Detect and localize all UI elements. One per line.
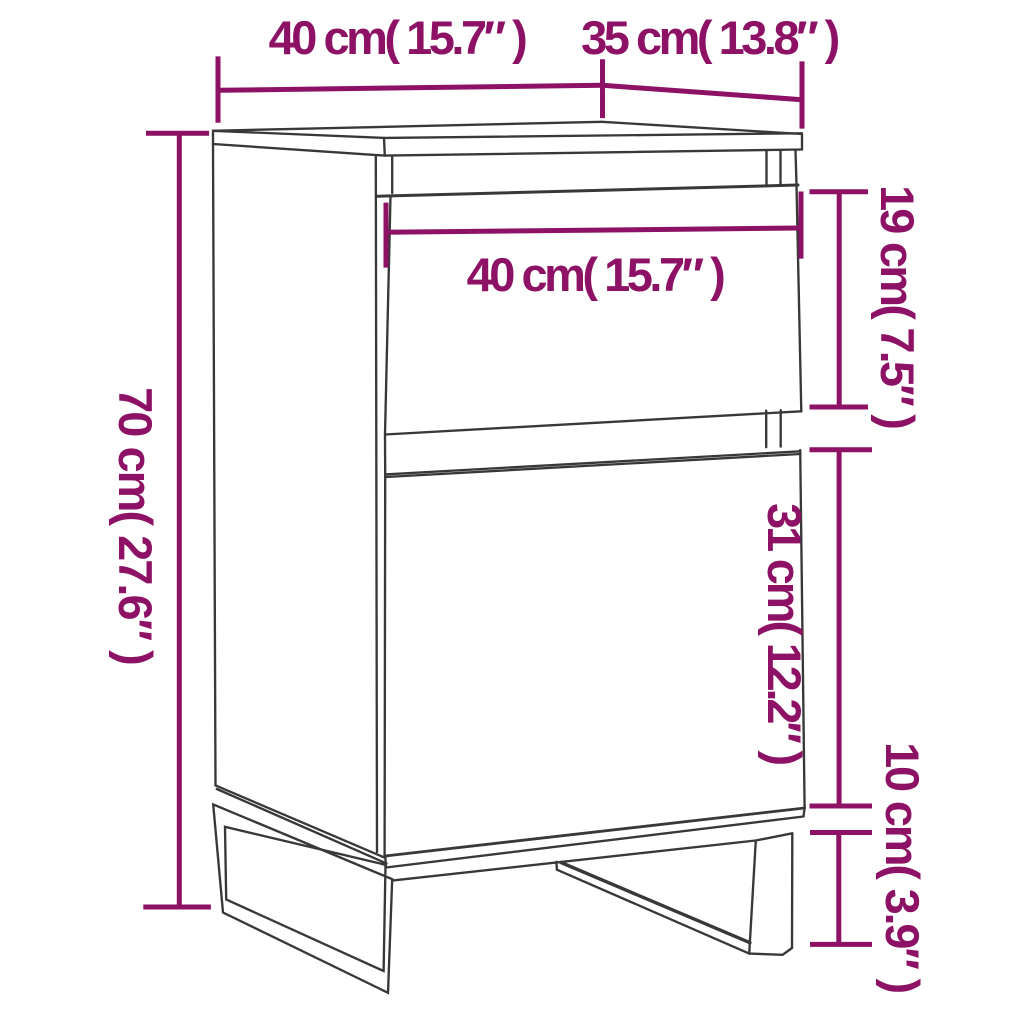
svg-text:10 cm( 3.9″ ): 10 cm( 3.9″ ) [876, 742, 929, 992]
svg-text:35 cm( 13.8″ ): 35 cm( 13.8″ ) [581, 11, 839, 64]
svg-text:40 cm( 15.7″ ): 40 cm( 15.7″ ) [467, 248, 725, 301]
svg-text:40 cm( 15.7″ ): 40 cm( 15.7″ ) [269, 11, 527, 64]
svg-text:31 cm( 12.2″ ): 31 cm( 12.2″ ) [758, 503, 811, 764]
svg-text:70 cm( 27.6″ ): 70 cm( 27.6″ ) [109, 387, 162, 664]
svg-text:19 cm( 7.5″ ): 19 cm( 7.5″ ) [871, 185, 924, 428]
